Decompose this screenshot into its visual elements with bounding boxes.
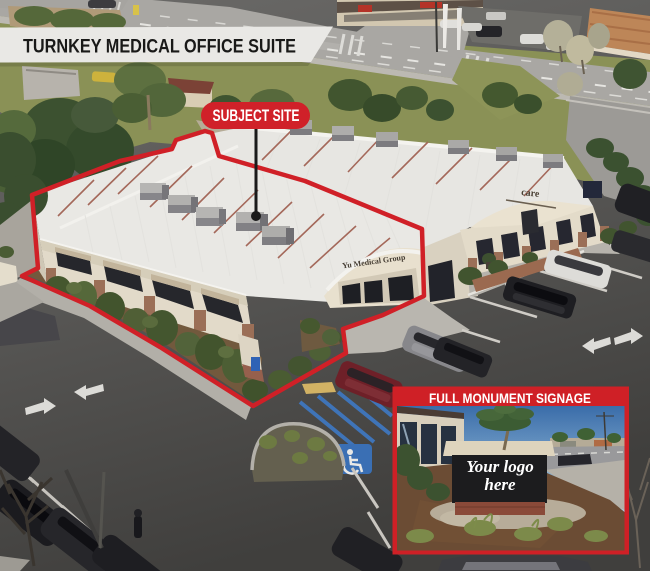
svg-text:TURNKEY MEDICAL OFFICE SUITE: TURNKEY MEDICAL OFFICE SUITE [23,36,296,58]
svg-text:SUBJECT SITE: SUBJECT SITE [213,106,300,125]
svg-text:Your logo: Your logo [466,457,534,476]
svg-text:here: here [484,475,516,494]
svg-text:care: care [521,187,541,200]
svg-text:FULL MONUMENT SIGNAGE: FULL MONUMENT SIGNAGE [429,390,591,406]
